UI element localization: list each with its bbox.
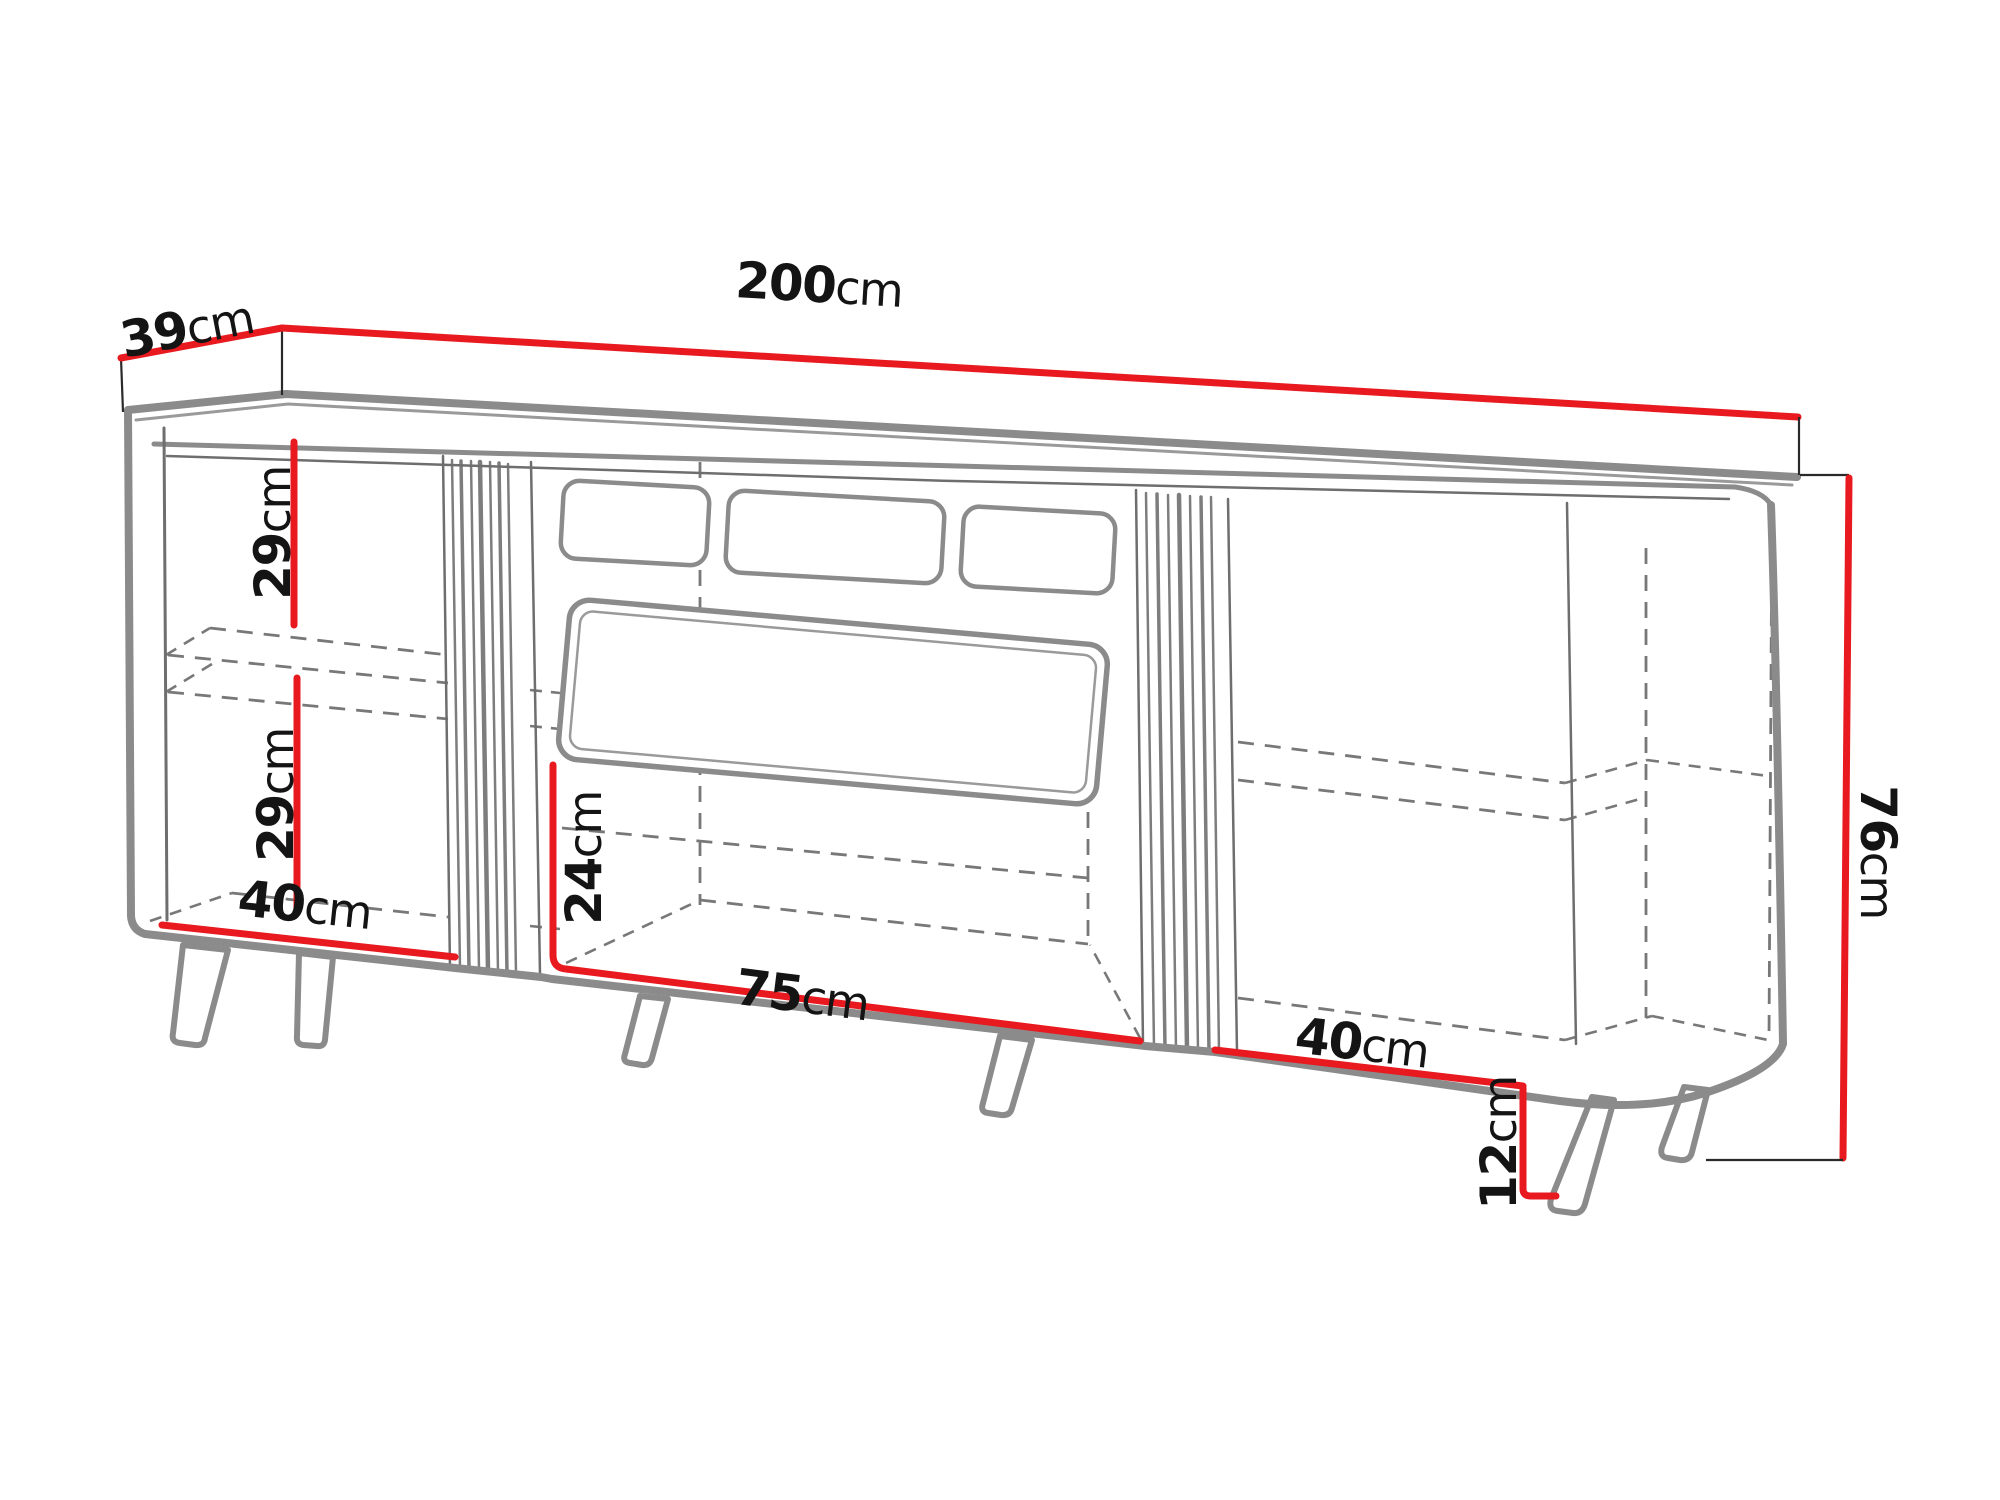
left-shelf-corner-dash-2: [166, 664, 212, 692]
dim-label-height-total: 76cm: [1849, 785, 1907, 919]
middle-shelf-back-dashed: [562, 828, 1088, 878]
dim-label-leg-height: 12cm: [1470, 1076, 1528, 1210]
leg-middle-right: [982, 1036, 1032, 1115]
middle-bottom-back-dashed: [700, 900, 1088, 944]
flute-line: [1190, 496, 1198, 1050]
left-shelf-front-dashed: [168, 655, 448, 683]
furniture-dimension-diagram: 39cm 200cm 29cm 29cm 40cm 24cm 75cm 40cm…: [0, 0, 2000, 1500]
leg-middle-left: [624, 996, 668, 1065]
dim-label-left-lower-height: 29cm: [247, 728, 305, 862]
flute-line: [1179, 495, 1187, 1049]
flute-line: [508, 464, 516, 974]
vent-opening-3: [960, 506, 1116, 594]
right-bottom-corner-dash-2: [1652, 1016, 1768, 1040]
flute-line: [471, 461, 479, 970]
hidden-lines-right-cabinet: [1238, 502, 1772, 1040]
diagram-canvas: 39cm 200cm 29cm 29cm 40cm 24cm 75cm 40cm…: [0, 0, 2000, 1500]
vent-opening-1: [560, 480, 710, 566]
fluted-divider-left: [443, 456, 540, 974]
middle-bottom-right-receding-dash: [1090, 945, 1140, 1038]
dim-line-76: [1843, 478, 1849, 1158]
right-inner-panel-edge: [1567, 503, 1576, 1044]
flute-line: [1168, 495, 1176, 1049]
flute-line: [1146, 493, 1154, 1047]
dim-label-depth: 39cm: [116, 287, 258, 369]
top-front-edge: [154, 444, 1771, 505]
flute-line: [1201, 497, 1209, 1051]
flute-line: [461, 461, 469, 969]
right-shelf-corner-dash-1: [1565, 760, 1647, 783]
left-shelf-back-dashed: [210, 628, 448, 655]
divider-left-edge: [443, 456, 450, 970]
leg-left-front: [173, 945, 228, 1045]
divider-right-edge-a: [1136, 490, 1143, 1045]
dim-label-left-upper-height: 29cm: [244, 466, 302, 600]
leg-left-back: [297, 953, 333, 1046]
flute-line: [499, 463, 507, 973]
front-openings: [557, 480, 1116, 805]
media-niche-outer: [557, 599, 1109, 806]
divider-left-right-edge: [531, 462, 540, 974]
flute-line: [1211, 497, 1219, 1051]
right-shelf-front-dashed: [1238, 742, 1565, 783]
left-shelf-corner-dash-1: [166, 628, 210, 655]
leg-right-front: [1550, 1097, 1614, 1213]
right-shelf-bottom-dashed: [1238, 780, 1565, 820]
divider-right-edge-b: [1228, 499, 1237, 1052]
left-bottom-corner-dash: [150, 893, 232, 921]
dim-label-middle-width: 75cm: [732, 958, 872, 1032]
right-shelf-back-dash: [1647, 760, 1768, 776]
right-bottom-corner-dash-1: [1565, 1016, 1652, 1040]
tick-39-left: [121, 358, 123, 412]
flute-line: [480, 462, 488, 971]
top-back-edge-inner: [136, 404, 1792, 485]
dim-label-middle-lower-height: 24cm: [555, 791, 613, 925]
left-inner-edge: [164, 428, 167, 920]
dim-label-width-total: 200cm: [734, 251, 904, 319]
right-shelf-corner-dash-2: [1565, 797, 1647, 820]
flute-line: [490, 462, 498, 972]
flute-line: [1157, 494, 1165, 1048]
left-shelf-bottom-dashed: [168, 692, 448, 719]
vent-opening-2: [725, 490, 945, 584]
fluted-divider-right: [1136, 490, 1237, 1052]
flute-line: [452, 460, 460, 968]
dim-label-left-width: 40cm: [235, 869, 374, 941]
